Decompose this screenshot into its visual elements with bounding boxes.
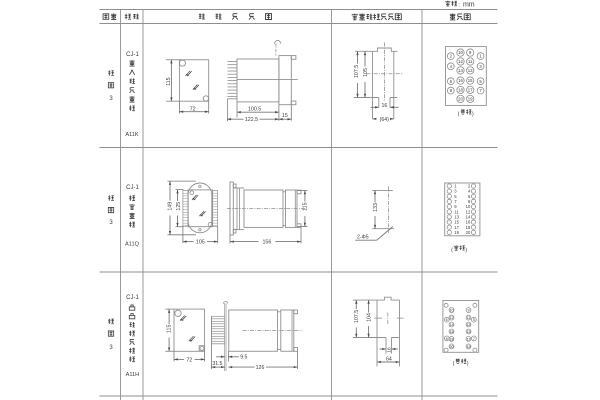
svg-text:125: 125 [176, 202, 182, 211]
svg-text:16: 16 [449, 330, 453, 334]
svg-text:A11H: A11H [126, 372, 140, 378]
svg-text:16: 16 [387, 347, 393, 353]
svg-text:18: 18 [449, 337, 453, 341]
svg-text:16: 16 [458, 78, 463, 83]
svg-text:(64): (64) [380, 117, 389, 123]
svg-text:14: 14 [458, 68, 463, 73]
svg-text:8: 8 [450, 88, 453, 93]
svg-text:20: 20 [458, 96, 463, 101]
svg-text:156: 156 [262, 239, 271, 245]
svg-text:15: 15 [282, 113, 288, 119]
svg-text:149: 149 [168, 202, 174, 211]
svg-text:100.5: 100.5 [248, 106, 261, 112]
svg-text:122.5: 122.5 [245, 117, 258, 123]
svg-text:9: 9 [467, 308, 469, 312]
svg-text:A11Q: A11Q [125, 242, 140, 248]
svg-text:16: 16 [382, 103, 388, 109]
svg-text:8: 8 [446, 337, 448, 341]
svg-text:2-Φ5: 2-Φ5 [357, 235, 369, 241]
svg-text:11: 11 [468, 59, 473, 64]
svg-text:CJ-1: CJ-1 [126, 185, 139, 191]
svg-text:11: 11 [467, 316, 471, 320]
svg-text:CJ-1: CJ-1 [126, 52, 139, 58]
svg-text:133: 133 [373, 203, 379, 212]
svg-text:107.5: 107.5 [354, 310, 360, 323]
svg-text:19: 19 [468, 96, 473, 101]
svg-text:105: 105 [363, 68, 369, 77]
svg-text:72: 72 [190, 107, 196, 113]
svg-text:4: 4 [450, 64, 453, 69]
svg-text:14: 14 [449, 323, 453, 327]
svg-text:12: 12 [458, 59, 463, 64]
svg-text:mm: mm [463, 1, 475, 8]
svg-text:126: 126 [256, 365, 265, 371]
svg-text:5: 5 [473, 318, 475, 322]
svg-text:12: 12 [449, 316, 453, 320]
svg-text:7: 7 [473, 337, 475, 341]
svg-text:17: 17 [466, 337, 470, 341]
svg-text:115: 115 [166, 325, 172, 333]
svg-text:9.5: 9.5 [240, 355, 247, 361]
svg-text:2: 2 [450, 54, 453, 59]
svg-text:3: 3 [109, 96, 113, 102]
svg-text:10: 10 [458, 50, 463, 55]
svg-text:107.5: 107.5 [354, 65, 360, 78]
svg-text:10: 10 [449, 308, 453, 312]
svg-text:1: 1 [479, 54, 482, 59]
svg-text:): ) [465, 247, 467, 253]
svg-text:31.5: 31.5 [212, 361, 222, 367]
svg-text:15: 15 [468, 78, 473, 83]
svg-text:15: 15 [466, 330, 470, 334]
svg-text:20: 20 [449, 345, 453, 349]
svg-text:(: ( [458, 111, 460, 117]
svg-text:6: 6 [450, 79, 453, 84]
svg-text:3: 3 [479, 64, 482, 69]
svg-text:A11K: A11K [125, 132, 139, 138]
svg-text:13: 13 [468, 68, 473, 73]
svg-text:19: 19 [454, 230, 459, 235]
svg-text:104: 104 [366, 313, 372, 322]
svg-text:CJ-1: CJ-1 [126, 295, 139, 301]
svg-text:17: 17 [468, 87, 473, 92]
svg-text:): ) [467, 361, 469, 367]
svg-text:7: 7 [479, 88, 482, 93]
svg-text:(: ( [451, 247, 453, 253]
svg-text:64: 64 [386, 356, 392, 362]
svg-text:5: 5 [479, 79, 482, 84]
svg-text:115: 115 [166, 77, 172, 85]
svg-text:72: 72 [186, 357, 192, 363]
svg-text:19: 19 [466, 345, 470, 349]
svg-text:20: 20 [466, 230, 471, 235]
svg-text:3: 3 [109, 345, 113, 351]
svg-text:9: 9 [469, 50, 472, 55]
svg-text:3: 3 [109, 220, 113, 226]
svg-text:13: 13 [466, 323, 470, 327]
svg-text:18: 18 [458, 87, 463, 92]
svg-text:115: 115 [303, 202, 309, 210]
svg-text:): ) [472, 111, 474, 117]
svg-text:105: 105 [196, 239, 205, 245]
svg-text:6: 6 [446, 318, 448, 322]
svg-text:(: ( [453, 361, 455, 367]
svg-text::: : [458, 1, 460, 8]
